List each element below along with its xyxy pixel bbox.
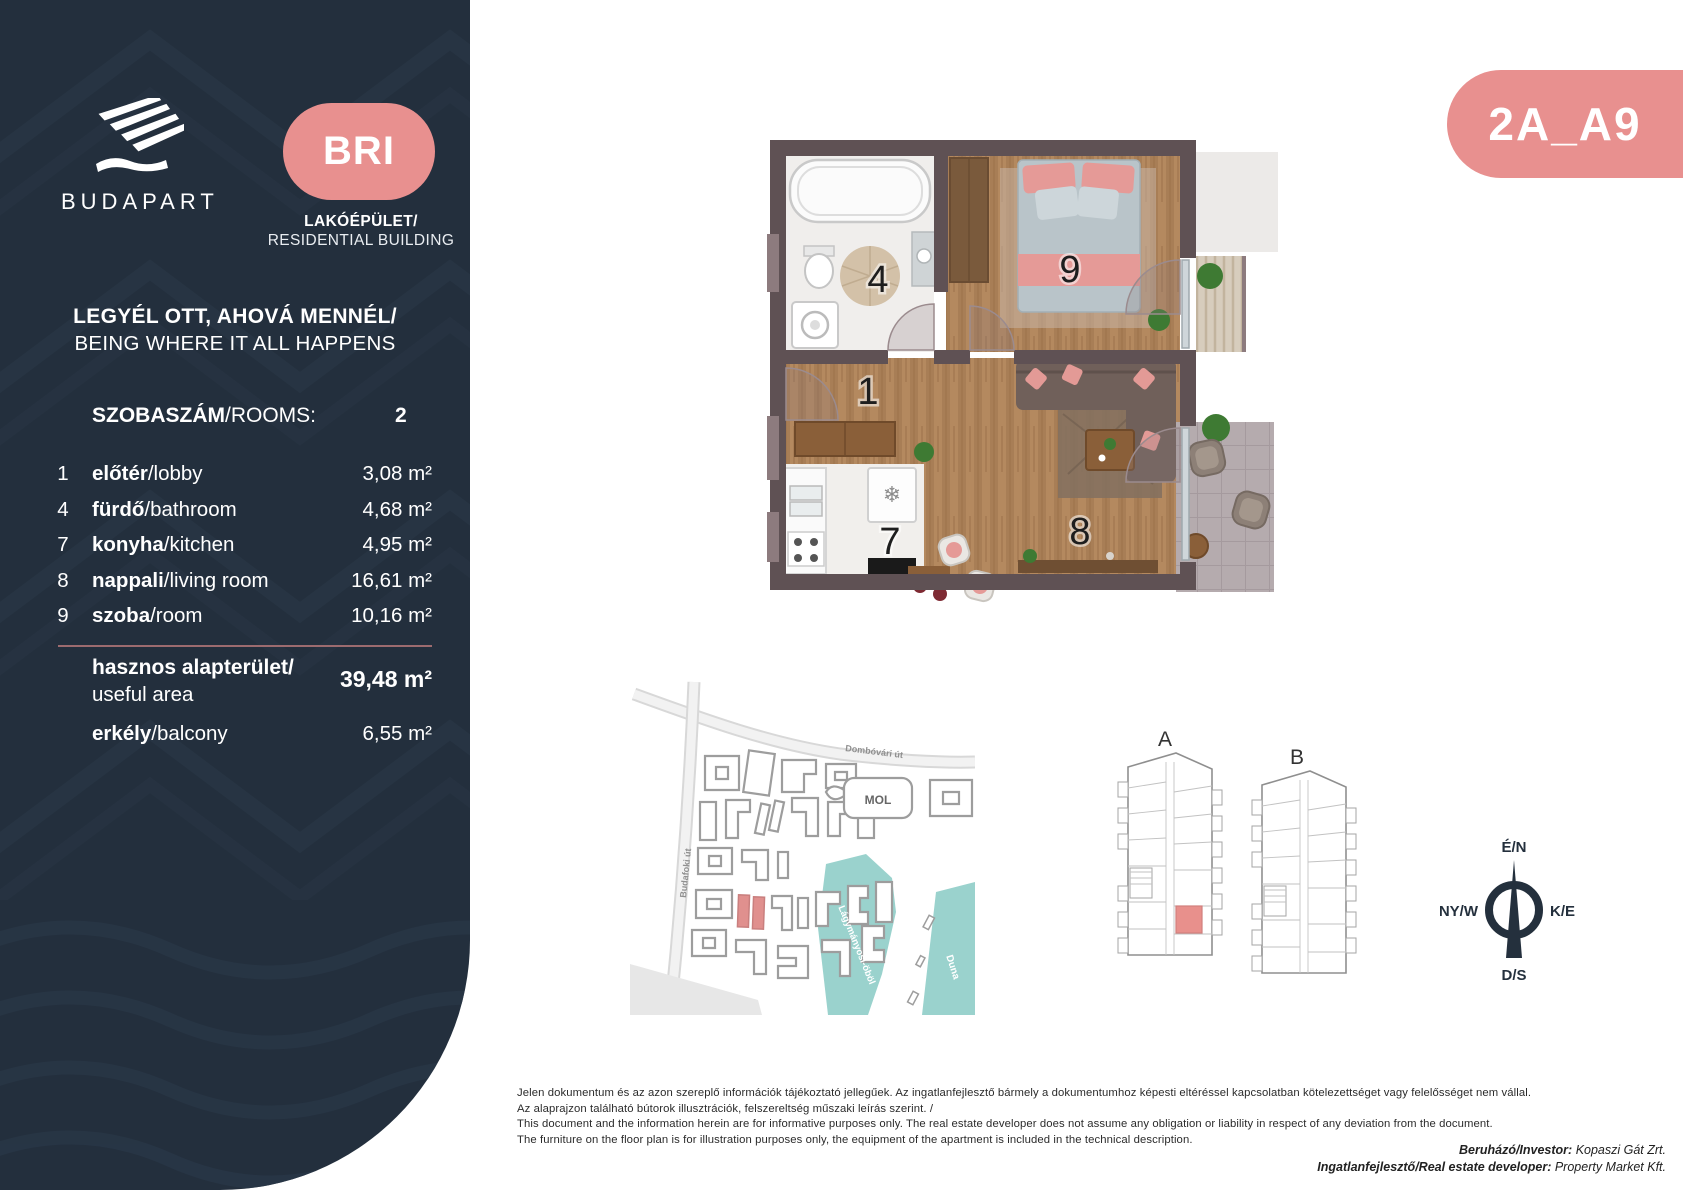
room-row-kitchen: 7 konyha/kitchen 4,95 m²	[0, 533, 470, 569]
rooms-label-en: /ROOMS:	[225, 404, 316, 427]
room-number: 9	[50, 604, 76, 628]
compass-needle	[1506, 860, 1522, 958]
room-area: 10,16 m²	[351, 604, 432, 628]
credits: Beruházó/Investor: Kopaszi Gát Zrt. Inga…	[1317, 1142, 1666, 1176]
room-number: 7	[50, 533, 76, 557]
room-name-hu: nappali	[92, 569, 164, 592]
compass-east-label: K/E	[1550, 903, 1575, 920]
useful-area-hu: hasznos alapterület/	[92, 656, 294, 680]
building-type-hu: LAKÓÉPÜLET/	[239, 212, 470, 231]
plan-number-living: 8	[1069, 511, 1090, 553]
room-name-hu: konyha	[92, 533, 164, 556]
balcony-name-hu: erkély	[92, 722, 151, 745]
page: BUDAPART BRI LAKÓÉPÜLET/ RESIDENTIAL BUI…	[0, 0, 1683, 1190]
room-name: szoba/room	[92, 604, 203, 628]
room-list: 1 előtér/lobby 3,08 m² 4 fürdő/bathroom …	[0, 462, 470, 640]
room-name-hu: előtér	[92, 462, 148, 485]
compass-rose: É/N NY/W K/E D/S	[1440, 780, 1600, 985]
building-badge: BRI	[283, 103, 435, 200]
building-b-label: B	[1290, 746, 1304, 769]
brand-name: BUDAPART	[61, 189, 211, 215]
plan-number-lobby: 1	[857, 371, 878, 413]
building-b-plan: B	[1252, 746, 1356, 973]
tagline: LEGYÉL OTT, AHOVÁ MENNÉL/ BEING WHERE IT…	[15, 303, 455, 357]
room-area: 3,08 m²	[363, 462, 433, 486]
useful-area-en: useful area	[92, 683, 193, 707]
rooms-header: SZOBASZÁM/ROOMS: 2	[92, 404, 432, 428]
room-name-en: /room	[150, 604, 202, 627]
plan-number-kitchen: 7	[879, 521, 900, 563]
room-name: előtér/lobby	[92, 462, 203, 486]
developer-label: Ingatlanfejlesztő/Real estate developer:	[1317, 1160, 1551, 1174]
disclaimer-line-2: Az alaprajzon található bútorok illusztr…	[517, 1102, 1677, 1118]
plan-number-room: 9	[1059, 249, 1080, 291]
room-name-en: /bathroom	[144, 498, 236, 521]
rooms-count: 2	[395, 404, 407, 428]
building-a-plan: A	[1118, 728, 1222, 955]
room-name: fürdő/bathroom	[92, 498, 237, 522]
unit-code-badge: 2A_A9	[1447, 70, 1683, 178]
room-name: konyha/kitchen	[92, 533, 234, 557]
map-highlighted-buildings	[737, 895, 764, 929]
room-number: 4	[50, 498, 76, 522]
balcony-name-en: /balcony	[151, 722, 227, 745]
balcony-name: erkély/balcony	[92, 722, 228, 746]
disclaimer-line-3: This document and the information herein…	[517, 1117, 1677, 1133]
developer-line: Ingatlanfejlesztő/Real estate developer:…	[1317, 1159, 1666, 1176]
list-divider	[58, 645, 432, 647]
room-row-living: 8 nappali/living room 16,61 m²	[0, 569, 470, 605]
rooms-label-hu: SZOBASZÁM	[92, 404, 225, 427]
room-row-bathroom: 4 fürdő/bathroom 4,68 m²	[0, 498, 470, 534]
room-name-hu: fürdő	[92, 498, 144, 521]
sidebar-panel: BUDAPART BRI LAKÓÉPÜLET/ RESIDENTIAL BUI…	[0, 0, 470, 1190]
room-number: 1	[50, 462, 76, 486]
room-name: nappali/living room	[92, 569, 269, 593]
neighbour-area	[1196, 152, 1278, 252]
balcony-value: 6,55 m²	[363, 722, 433, 746]
compass-south-label: D/S	[1501, 967, 1526, 984]
useful-area-value: 39,48 m²	[340, 666, 432, 693]
room-name-en: /living room	[164, 569, 269, 592]
room-name-en: /kitchen	[164, 533, 235, 556]
room-name-en: /lobby	[148, 462, 203, 485]
tagline-en: BEING WHERE IT ALL HAPPENS	[15, 330, 455, 357]
developer-value: Property Market Kft.	[1551, 1160, 1666, 1174]
room-area: 16,61 m²	[351, 569, 432, 593]
tagline-hu: LEGYÉL OTT, AHOVÁ MENNÉL/	[15, 303, 455, 330]
map-mol-label: MOL	[865, 793, 892, 807]
site-map: MOL Dombóvári út Budafoki út Lágymányosi…	[630, 668, 975, 1015]
room-row-lobby: 1 előtér/lobby 3,08 m²	[0, 462, 470, 498]
room-area: 4,68 m²	[363, 498, 433, 522]
hall-furniture	[795, 422, 895, 456]
investor-value: Kopaszi Gát Zrt.	[1572, 1143, 1666, 1157]
room-row-room: 9 szoba/room 10,16 m²	[0, 604, 470, 640]
building-type: LAKÓÉPÜLET/ RESIDENTIAL BUILDING	[239, 212, 470, 250]
budapart-logo-icon	[88, 98, 184, 178]
building-a-highlighted-unit	[1176, 906, 1202, 933]
building-key-plans: A B	[1030, 670, 1360, 985]
room-name-hu: szoba	[92, 604, 150, 627]
plan-number-bathroom: 4	[867, 259, 888, 301]
compass-north-label: É/N	[1501, 839, 1526, 856]
building-a-label: A	[1158, 728, 1172, 751]
investor-line: Beruházó/Investor: Kopaszi Gát Zrt.	[1317, 1142, 1666, 1159]
floorplan: ❄	[718, 134, 1278, 612]
disclaimer-line-1: Jelen dokumentum és az azon szereplő inf…	[517, 1086, 1677, 1102]
building-type-en: RESIDENTIAL BUILDING	[239, 231, 470, 250]
disclaimer: Jelen dokumentum és az azon szereplő inf…	[517, 1086, 1677, 1148]
map-water	[818, 854, 975, 1015]
compass-west-label: NY/W	[1440, 903, 1479, 920]
room-area: 4,95 m²	[363, 533, 433, 557]
room-number: 8	[50, 569, 76, 593]
fridge-snowflake-icon: ❄	[883, 482, 901, 507]
budapart-logo: BUDAPART	[61, 98, 211, 215]
investor-label: Beruházó/Investor:	[1459, 1143, 1572, 1157]
